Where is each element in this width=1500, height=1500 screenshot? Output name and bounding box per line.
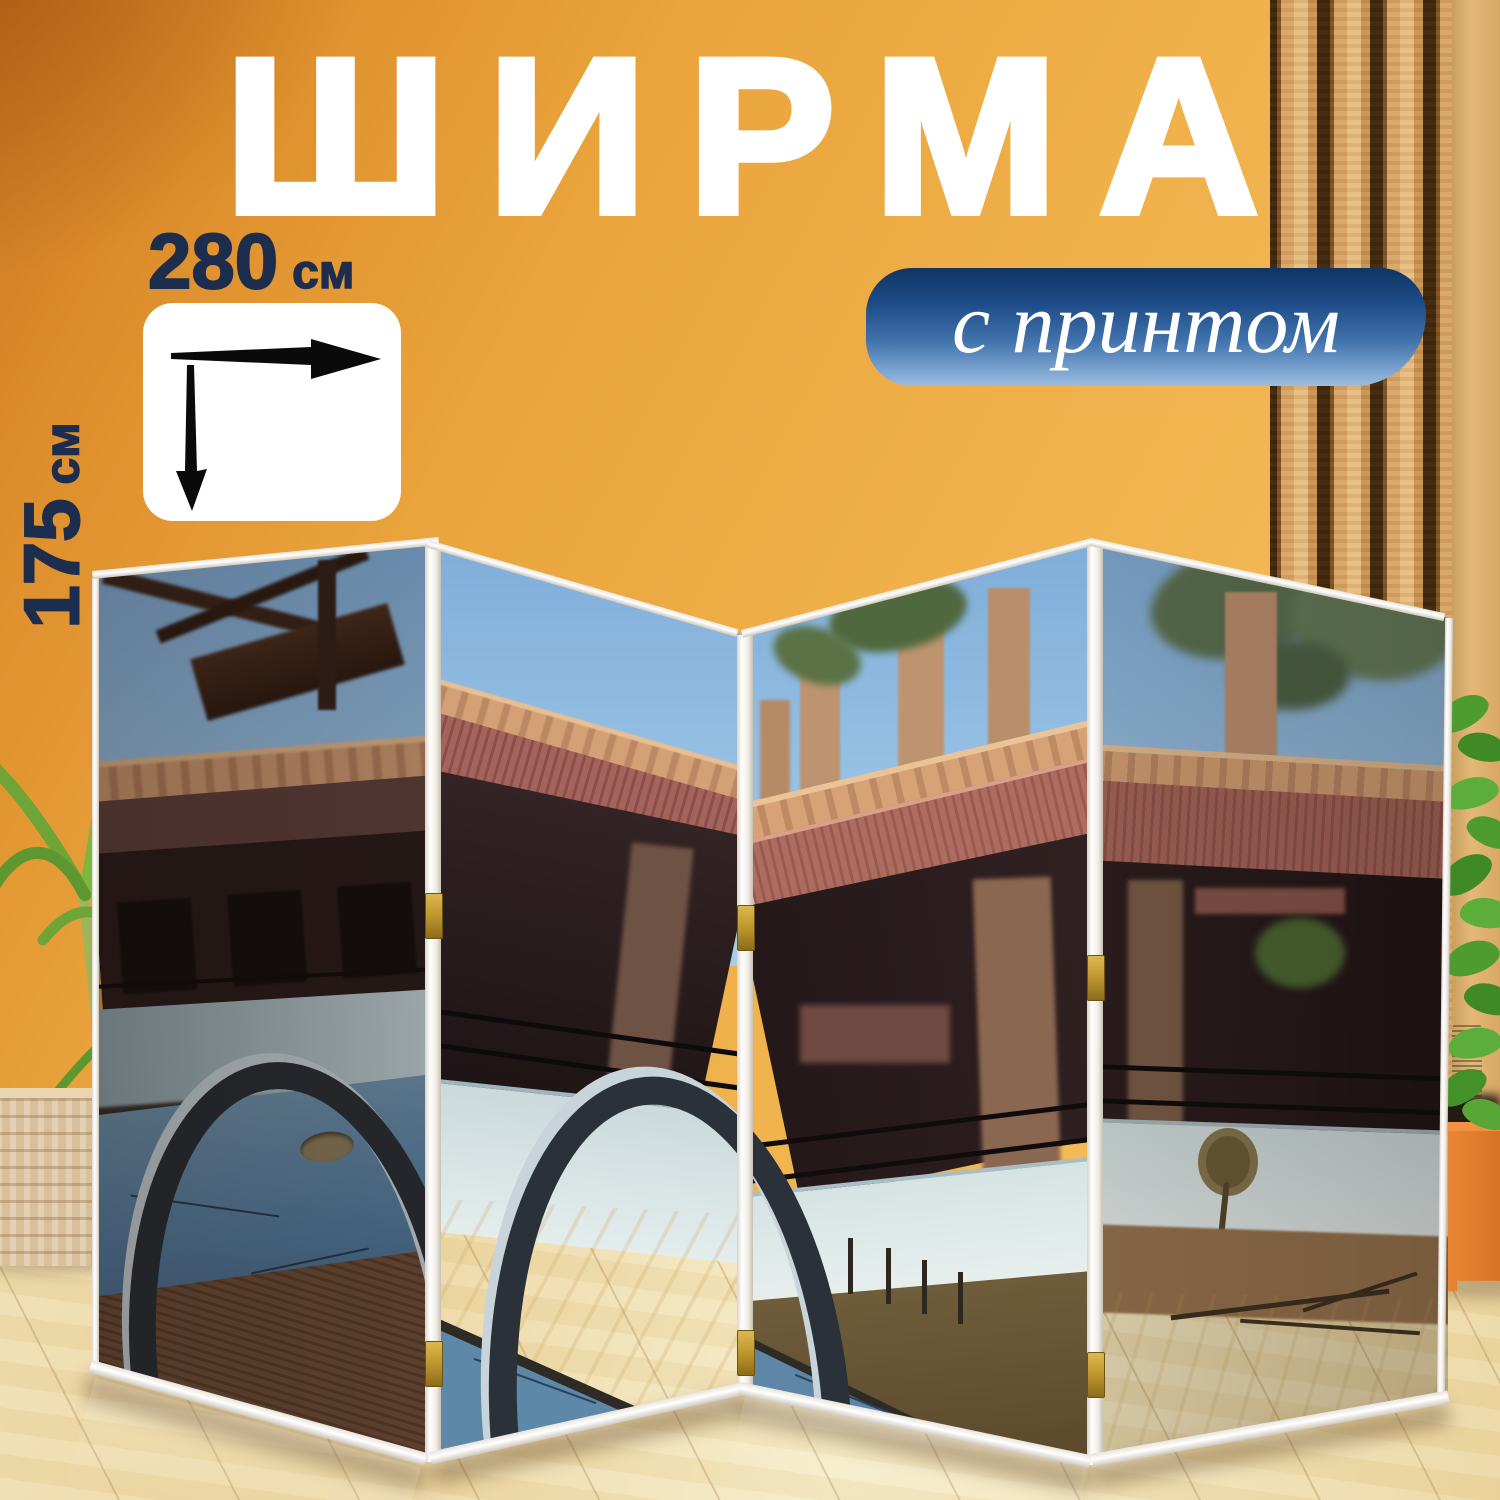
wicker-basket: [0, 1088, 100, 1266]
product-title: ШИРМА: [225, 10, 1385, 263]
arrow-right-icon: [171, 339, 381, 379]
height-dimension-label: 175см: [7, 326, 98, 726]
hinge-icon: [425, 893, 443, 939]
frame-fold-3: [1087, 543, 1103, 1465]
width-dimension-label: 280см: [148, 216, 354, 307]
dimension-diagram: [143, 303, 401, 521]
print-post: [922, 1260, 927, 1314]
product-image: ШИРМА 280см 175см с принтом: [0, 0, 1500, 1500]
hinge-icon: [425, 1341, 443, 1387]
print-post: [848, 1238, 853, 1294]
hinge-icon: [1087, 955, 1105, 1001]
print-post: [958, 1272, 963, 1324]
hinge-icon: [737, 1330, 755, 1376]
print-pillar: [973, 877, 1062, 1185]
hinge-icon: [1087, 1352, 1105, 1398]
print-post: [886, 1248, 891, 1304]
print-badge: с принтом: [866, 268, 1426, 386]
arrow-down-icon: [176, 365, 207, 511]
hinge-icon: [737, 905, 755, 951]
print-chimney: [988, 588, 1030, 748]
frame-edge-left: [92, 578, 99, 1370]
frame-fold-1: [425, 545, 441, 1462]
frame-fold-2: [737, 635, 753, 1392]
print-inner-wall: [800, 1005, 950, 1063]
orange-pot: [1446, 1122, 1500, 1291]
